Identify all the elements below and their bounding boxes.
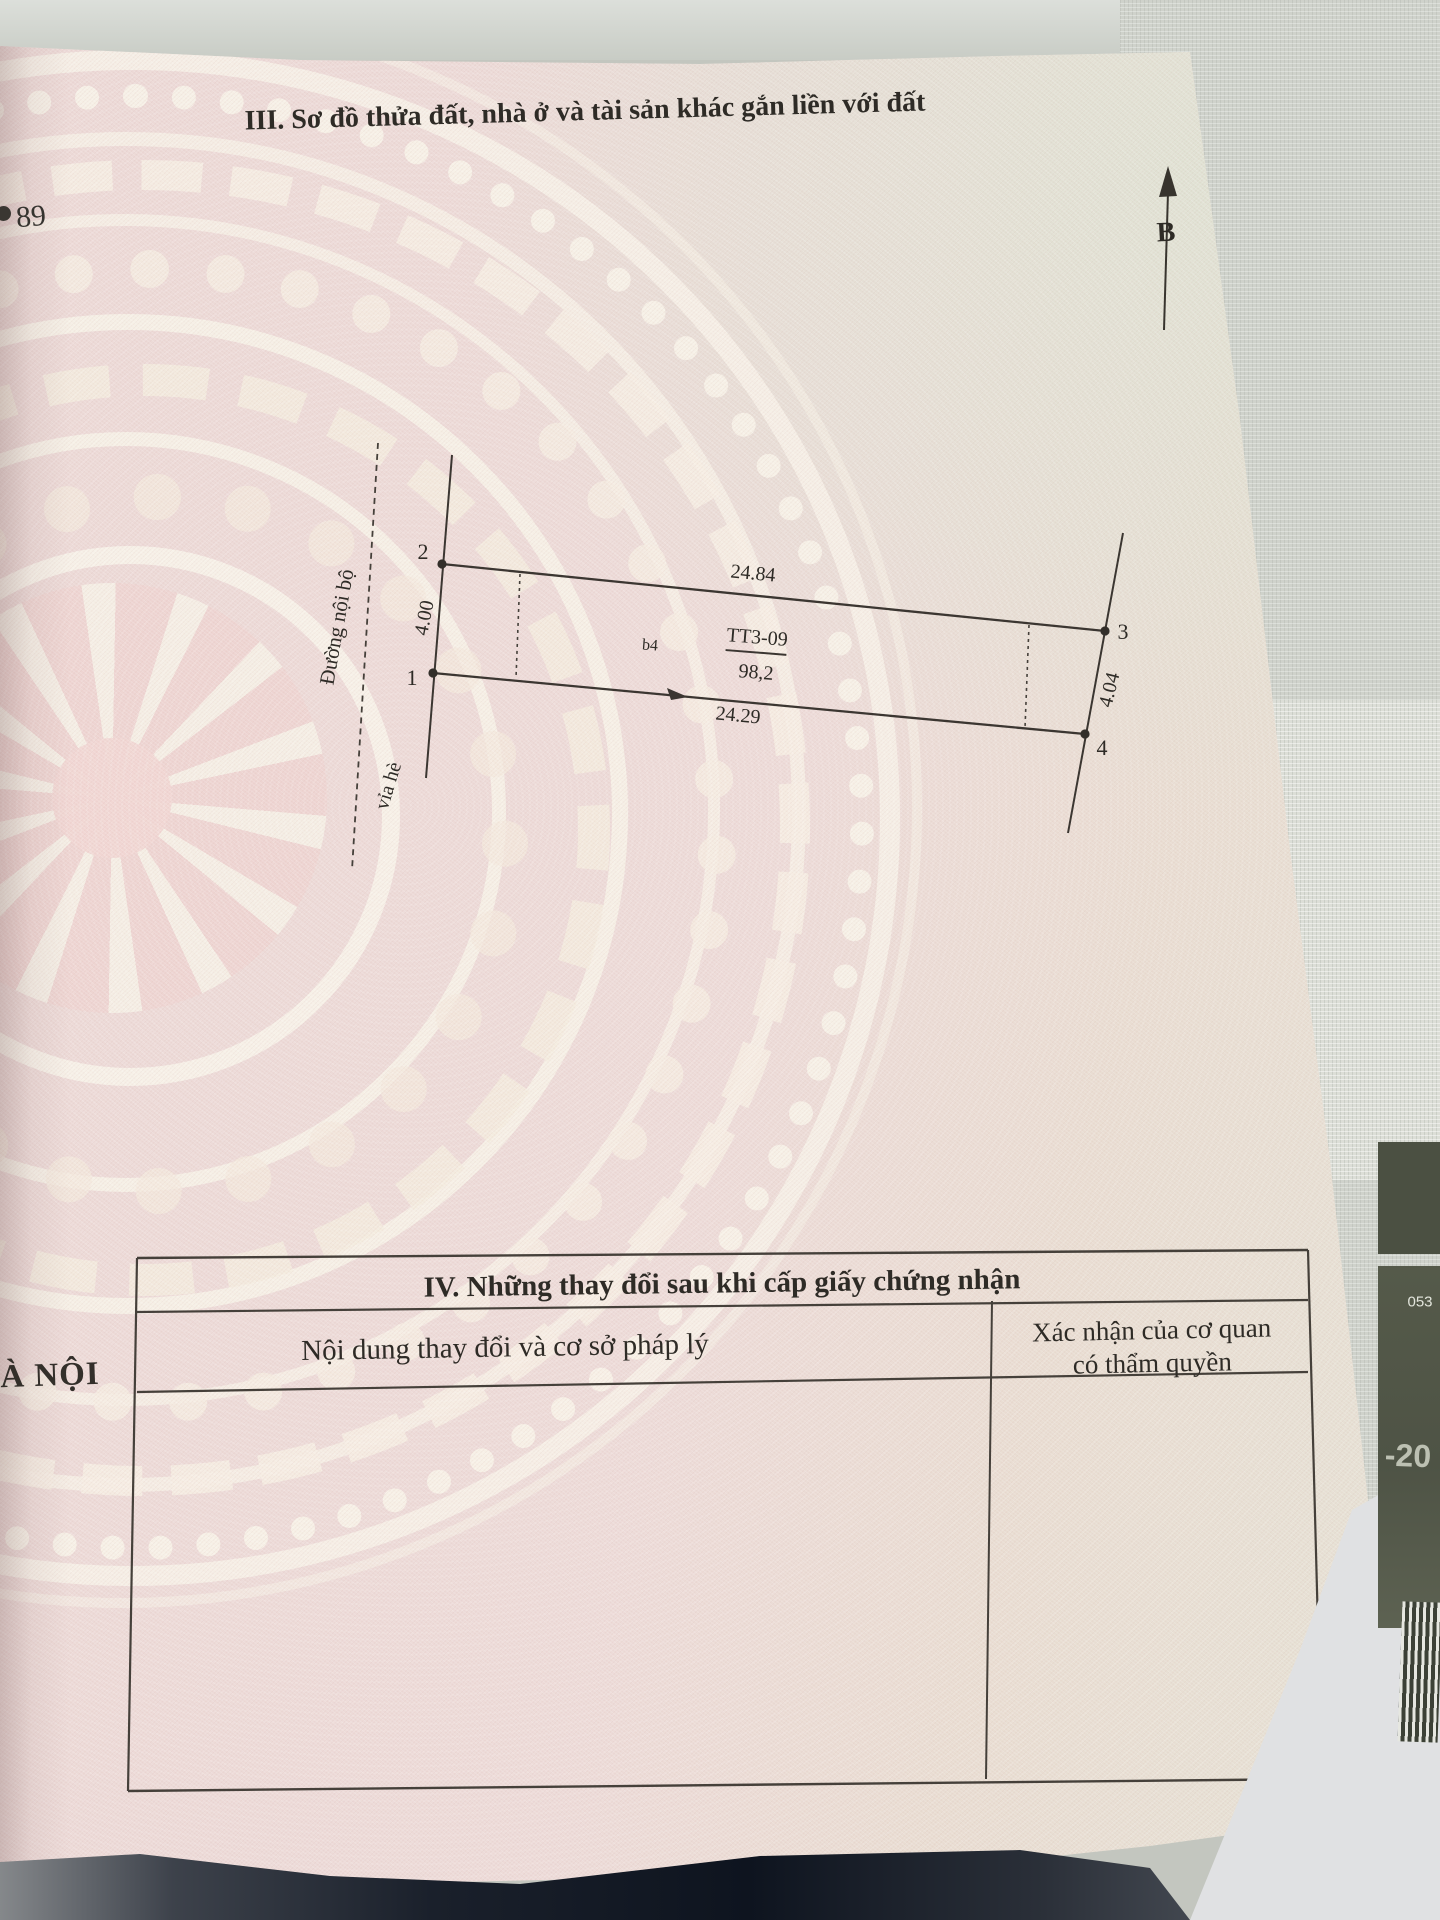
point-label-4: 4 [1097,735,1108,761]
inner-dashed-line-right [1025,625,1029,728]
barcode-stripes [1398,1601,1440,1742]
inner-dashed-line-left [516,574,520,678]
north-arrow-head [1159,166,1177,197]
corner-point-2 [437,559,446,568]
dimension-arrowhead [667,688,688,700]
dimension-top: 24.84 [730,560,777,587]
section4-col2-header: Xác nhận của cơ quan có thẩm quyền [1032,1312,1273,1383]
margin-number: 89 [15,199,48,235]
table-border-top [137,1250,1308,1258]
photo-of-land-certificate: III. Sơ đồ thửa đất, nhà ở và tài sản kh… [0,0,1440,1920]
point-label-1: 1 [407,665,418,691]
sticker-block: 053 -20 [1378,1266,1440,1628]
north-arrow-line [1164,192,1168,330]
sticker-number-small: 053 [1407,1294,1432,1311]
plot-area: 98,2 [738,660,775,686]
point-label-2: 2 [418,539,429,565]
block-label: b4 [641,636,658,655]
barcode-sticker: 053 -20 [1378,1142,1440,1628]
corner-point-1 [428,668,437,677]
corner-point-3 [1100,626,1109,635]
north-label: B [1156,217,1176,250]
sticker-block [1378,1142,1440,1254]
corner-point-4 [1080,729,1089,738]
left-edge-text: À NỘI [0,1356,100,1396]
section4-col2-header-line1: Xác nhận của cơ quan [1032,1312,1272,1350]
table-title-divider [137,1300,1308,1312]
table-border-bottom [128,1779,1322,1791]
sticker-number-large: -20 [1384,1437,1432,1476]
point-label-3: 3 [1118,619,1129,645]
table-column-divider [986,1301,992,1779]
plot-code: TT3-09 [725,624,788,656]
section4-col2-header-line2: có thẩm quyền [1032,1344,1272,1382]
table-border-left [128,1258,137,1791]
dimension-bottom: 24.29 [715,702,762,729]
